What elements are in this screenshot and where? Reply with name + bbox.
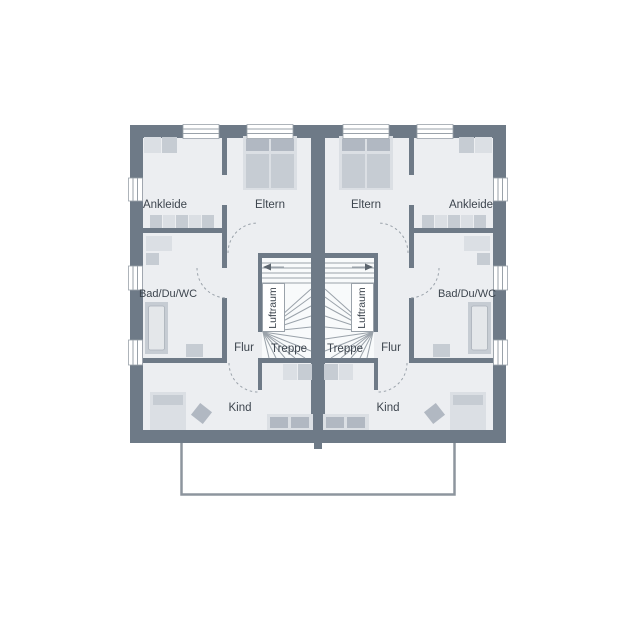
room-label-bad-right: Bad/Du/WC — [438, 288, 496, 300]
ankleide-wardrobe-row-right — [422, 215, 486, 230]
room-label-eltern-right: Eltern — [351, 199, 381, 211]
window-left-1 — [129, 178, 143, 201]
room-label-ankleide-left: Ankleide — [143, 199, 187, 211]
room-label-kind-right: Kind — [376, 402, 399, 414]
window-right-3 — [494, 340, 508, 365]
sink-left — [186, 344, 203, 357]
ankleide-cabinet-left — [144, 137, 177, 153]
party-wall-stub — [314, 443, 322, 449]
parents-bed-right — [339, 136, 393, 190]
balcony-outline — [182, 443, 455, 495]
window-top-4 — [417, 125, 453, 139]
window-right-2 — [494, 266, 508, 290]
building-shell — [130, 125, 506, 443]
room-label-luftraum-left: Luftraum — [267, 287, 279, 328]
room-label-eltern-left: Eltern — [255, 199, 285, 211]
floor-plan-canvas: Ankleide Eltern Bad/Du/WC Flur Treppe Lu… — [0, 0, 636, 636]
bathtub-left — [149, 306, 165, 350]
window-top-3 — [343, 125, 389, 139]
room-label-ankleide-right: Ankleide — [449, 199, 493, 211]
room-label-flur-right: Flur — [381, 342, 401, 354]
window-top-2 — [247, 125, 293, 139]
ankleide-cabinet-right — [459, 137, 492, 153]
bathtub-right — [472, 306, 488, 350]
window-left-3 — [129, 340, 143, 365]
sink-right — [433, 344, 450, 357]
room-label-kind-left: Kind — [228, 402, 251, 414]
room-label-flur-left: Flur — [234, 342, 254, 354]
room-label-luftraum-right: Luftraum — [356, 287, 368, 328]
parents-bed-left — [243, 136, 297, 190]
window-left-2 — [129, 266, 143, 290]
room-label-treppe-right: Treppe — [327, 343, 363, 355]
room-label-treppe-left: Treppe — [271, 343, 307, 355]
floor-plan-drawing — [0, 0, 636, 636]
room-label-bad-left: Bad/Du/WC — [139, 288, 197, 300]
window-right-1 — [494, 178, 508, 201]
window-top-1 — [183, 125, 219, 139]
ankleide-wardrobe-row-left — [150, 215, 214, 230]
